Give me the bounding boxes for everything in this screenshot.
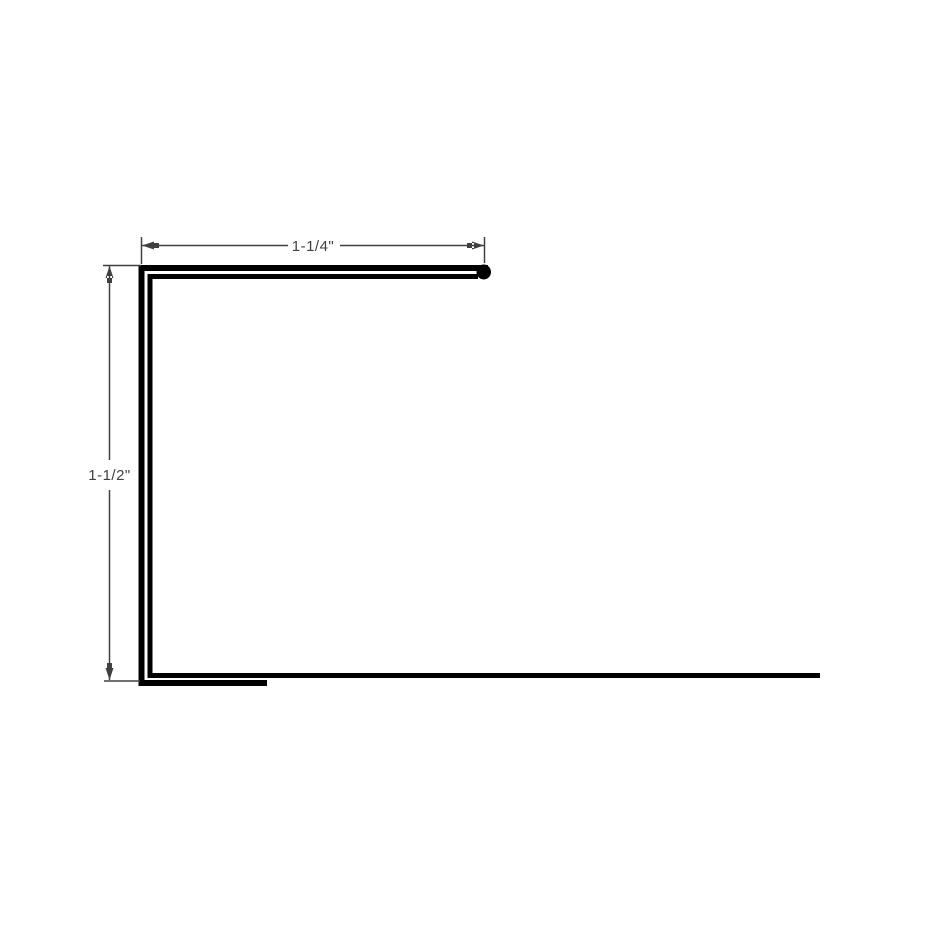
profile-outer-surface bbox=[142, 268, 489, 683]
top-dimension-arrow-left-icon bbox=[142, 242, 159, 250]
top-dimension-arrow-right-icon bbox=[467, 242, 484, 250]
profile bbox=[142, 265, 821, 684]
top-dimension: 1-1/4" bbox=[142, 237, 485, 264]
top-dimension-label: 1-1/4" bbox=[292, 238, 335, 255]
left-dimension-arrow-up-icon bbox=[106, 266, 114, 283]
left-dimension: 1-1/2" bbox=[88, 266, 141, 682]
left-dimension-arrow-down-icon bbox=[106, 663, 114, 680]
drawing-canvas: 1-1/4" 1-1/2" bbox=[0, 0, 930, 931]
left-dimension-label: 1-1/2" bbox=[88, 467, 131, 484]
trim-profile-drawing: 1-1/4" 1-1/2" bbox=[0, 0, 930, 931]
profile-hem-cap bbox=[477, 265, 492, 280]
profile-inner-surface bbox=[150, 277, 820, 676]
